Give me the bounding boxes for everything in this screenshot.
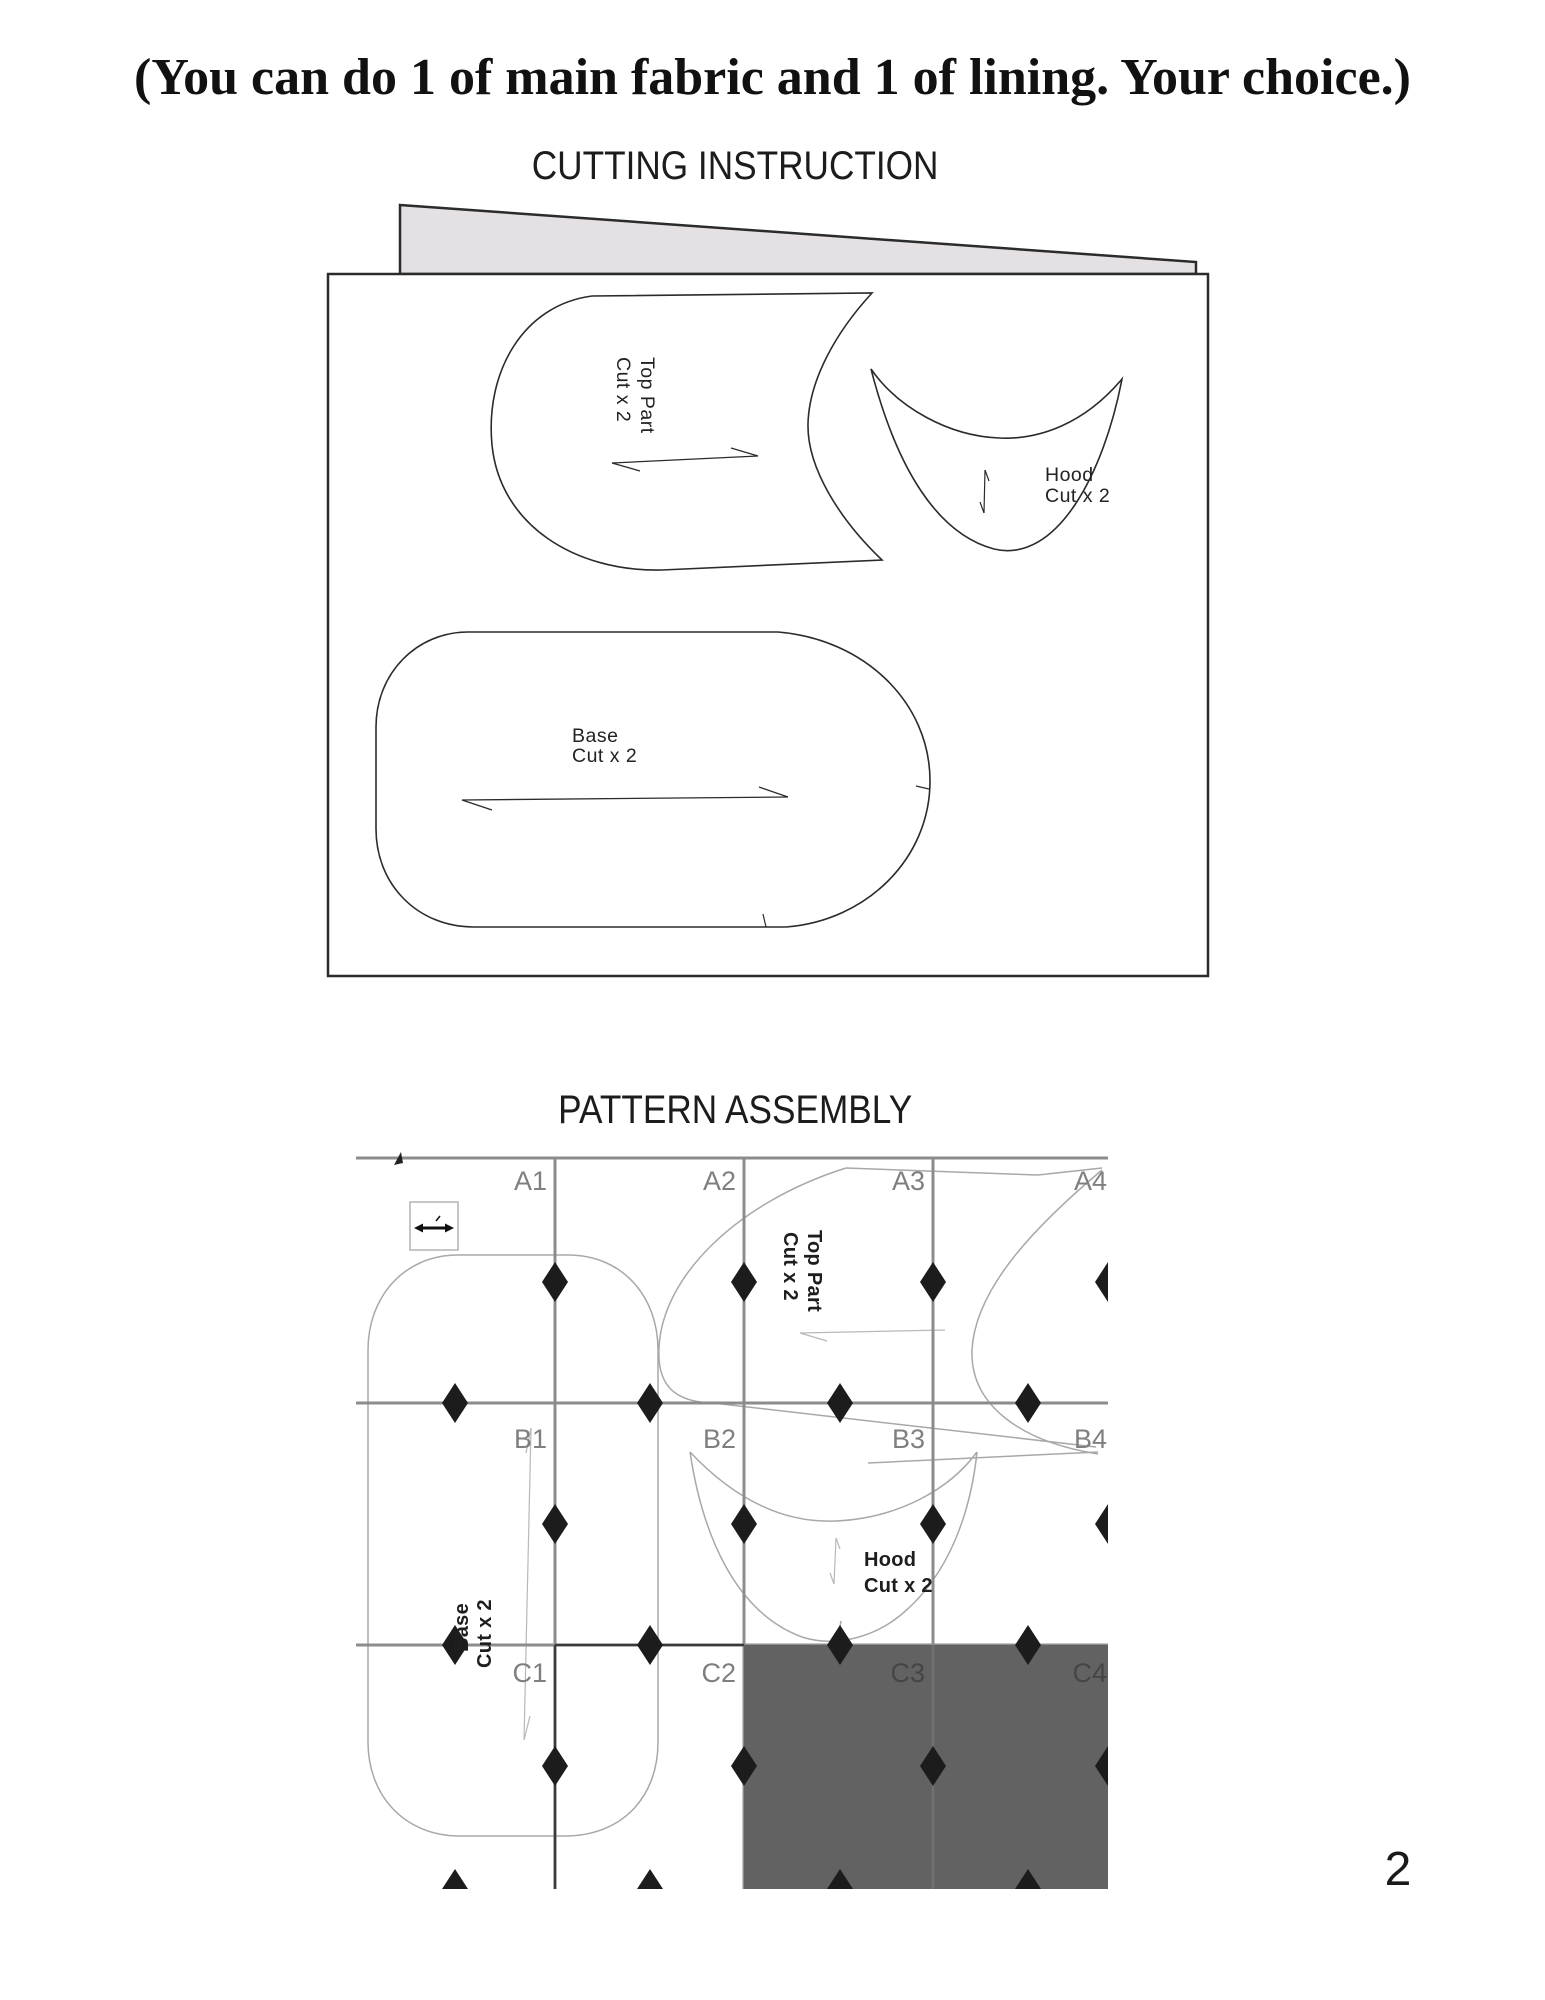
hood-piece-qty: Cut x 2 <box>1045 485 1110 507</box>
cutting-instruction-heading-text: CUTTING INSTRUCTION <box>532 144 939 189</box>
test-square <box>410 1202 458 1250</box>
grid-row-b-labels: B1 B2 B3 B4 <box>514 1424 1107 1454</box>
pattern-assembly-heading: PATTERN ASSEMBLY <box>345 1088 1125 1133</box>
cutting-instruction-heading: CUTTING INSTRUCTION <box>345 144 1125 189</box>
grid-label-c3: C3 <box>890 1658 925 1688</box>
cutting-instruction-diagram: Top Part Cut x 2 Hood Cut x 2 Base Cut x… <box>320 195 1220 985</box>
hood-piece-name: Hood <box>1045 464 1094 486</box>
grid-label-c4: C4 <box>1072 1658 1107 1688</box>
assembly-hood-qty: Cut x 2 <box>864 1575 933 1597</box>
grid-label-b3: B3 <box>892 1424 925 1454</box>
assembly-base-grainline <box>524 1428 531 1740</box>
page-title: (You can do 1 of main fabric and 1 of li… <box>0 48 1545 107</box>
base-piece-qty: Cut x 2 <box>572 745 637 767</box>
fabric-fold-flap <box>400 205 1196 274</box>
assembly-base-piece-outline <box>368 1255 658 1836</box>
assembly-base-qty: Cut x 2 <box>474 1599 496 1668</box>
assembly-top-part-outline <box>659 1168 1102 1463</box>
assembly-top-part-grainline <box>800 1330 945 1341</box>
assembly-top-part-qty: Cut x 2 <box>779 1232 801 1301</box>
base-piece-outline <box>376 632 930 927</box>
top-part-piece-qty: Cut x 2 <box>612 357 634 422</box>
assembly-hood-grainline <box>830 1538 840 1584</box>
pattern-assembly-heading-text: PATTERN ASSEMBLY <box>558 1088 912 1133</box>
grid-label-b4: B4 <box>1074 1424 1107 1454</box>
grid-label-a3: A3 <box>892 1166 925 1196</box>
top-part-piece-name: Top Part <box>636 357 658 434</box>
assembly-hood-name: Hood <box>864 1549 916 1571</box>
grid-label-a1: A1 <box>514 1166 547 1196</box>
grid-label-c2: C2 <box>701 1658 736 1688</box>
grid-label-a4: A4 <box>1074 1166 1107 1196</box>
assembly-base-name: Base <box>451 1603 473 1652</box>
pattern-document-page: (You can do 1 of main fabric and 1 of li… <box>0 0 1545 2000</box>
grid-label-b1: B1 <box>514 1424 547 1454</box>
grid-label-a2: A2 <box>703 1166 736 1196</box>
pattern-assembly-diagram: A1 A2 A3 A4 B1 B2 B3 B4 C1 C2 C3 C4 <box>350 1150 1108 1889</box>
base-piece-name: Base <box>572 725 618 747</box>
assembly-top-part-name: Top Part <box>803 1230 825 1312</box>
grid-label-b2: B2 <box>703 1424 736 1454</box>
page-number: 2 <box>1368 1842 1428 1897</box>
grid-label-c1: C1 <box>512 1658 547 1688</box>
